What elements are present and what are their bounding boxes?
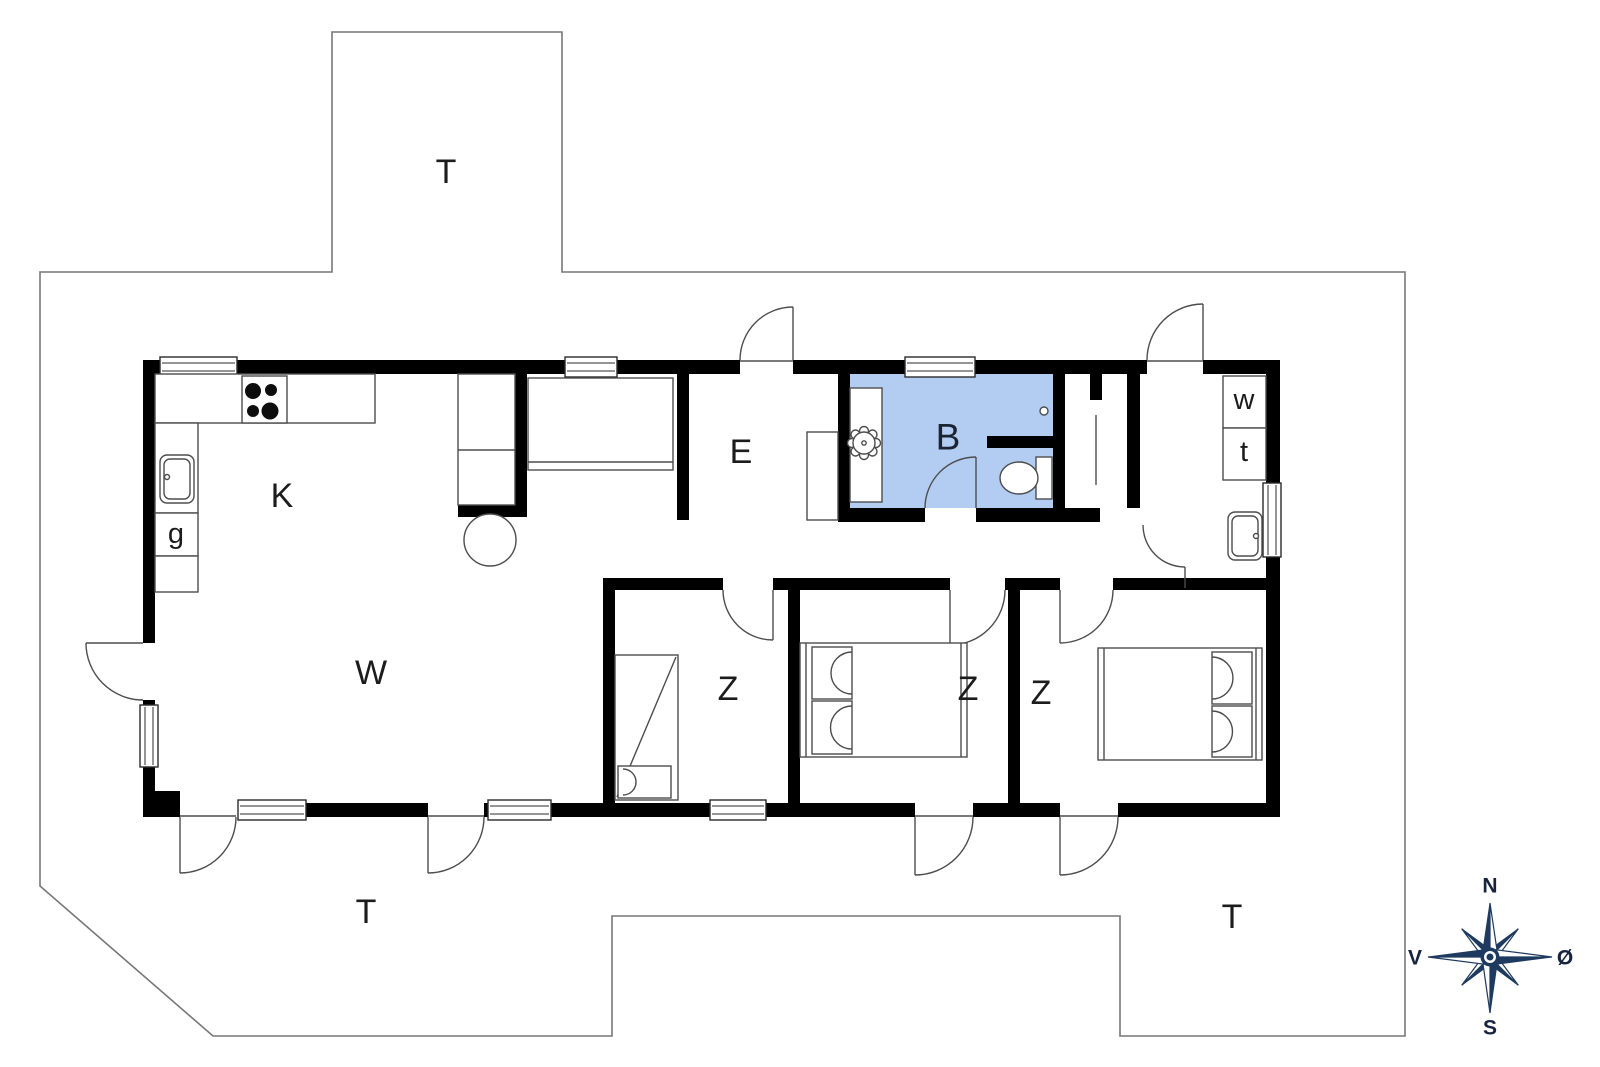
floor-plan: N S V Ø T T T K g W E B Z Z Z w t (0, 0, 1600, 1067)
window-utility-east (1263, 483, 1281, 557)
door-utility-north (1147, 304, 1203, 361)
compass-rose: N S V Ø (1408, 875, 1573, 1040)
stove-icon (242, 376, 287, 423)
window-living-south-2 (488, 800, 551, 820)
label-closet-g: g (168, 518, 184, 550)
closet-tall (458, 374, 515, 505)
entrance-cabinet (807, 432, 838, 520)
label-washer: w (1233, 384, 1256, 416)
compass-east-label: Ø (1557, 947, 1573, 970)
terrace-outline (40, 32, 1405, 1036)
door-bedroom3-south (1060, 816, 1118, 875)
compass-south-label: S (1483, 1017, 1497, 1040)
bedroom-fixtures (615, 643, 1262, 800)
label-bedroom-1: Z (718, 670, 739, 708)
compass-north-label: N (1482, 875, 1497, 898)
label-terrace-top: T (436, 153, 457, 191)
label-terrace-bottom-right: T (1222, 898, 1243, 936)
door-living-south-2 (428, 816, 484, 873)
double-bed-3-icon (1098, 648, 1262, 760)
label-bathroom: B (936, 417, 961, 458)
label-living-room: W (355, 654, 387, 692)
compass-west-label: V (1408, 947, 1422, 970)
wardrobe (528, 378, 673, 470)
bathroom-partition (987, 436, 1053, 448)
label-bedroom-2: Z (958, 670, 979, 708)
window-living-west (140, 705, 158, 767)
label-entrance: E (730, 433, 753, 471)
double-bed-2-icon (800, 643, 967, 757)
door-bedroom1 (723, 590, 773, 640)
label-kitchen: K (271, 477, 294, 515)
closet-box-2 (155, 556, 198, 592)
door-bedroom3 (1060, 590, 1113, 643)
door-bedroom2 (950, 590, 1005, 645)
bathroom-sink-icon (848, 427, 881, 460)
door-entrance-north (740, 307, 793, 361)
label-bedroom-3: Z (1031, 674, 1052, 712)
label-dryer: t (1240, 436, 1248, 468)
door-living-west (86, 643, 143, 700)
door-living-south-1 (180, 816, 236, 873)
bunk-bed-icon (615, 655, 678, 800)
door-bedroom2-south (915, 816, 973, 875)
window-living-south-1 (238, 800, 306, 820)
floor-drain-icon (1040, 407, 1048, 415)
kitchen-fixtures (155, 374, 375, 592)
window-hall-north (565, 357, 617, 377)
window-bedroom1-south (710, 800, 766, 820)
window-bathroom-north (905, 357, 975, 377)
utility-sink-icon (1228, 512, 1262, 560)
label-terrace-bottom-left: T (356, 893, 377, 931)
stool-icon (464, 514, 516, 566)
kitchen-sink-icon (160, 455, 194, 503)
